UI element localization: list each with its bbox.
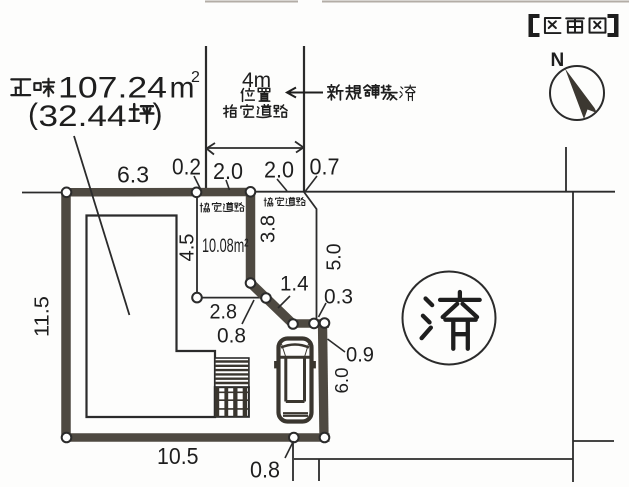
svg-text:11.5: 11.5 bbox=[31, 296, 54, 337]
svg-text:2.8: 2.8 bbox=[210, 300, 238, 324]
svg-text:N: N bbox=[551, 50, 565, 71]
svg-text:0.7: 0.7 bbox=[310, 154, 340, 180]
svg-text:6.0: 6.0 bbox=[332, 368, 352, 394]
svg-text:5.0: 5.0 bbox=[323, 244, 346, 271]
svg-text:10.08m²: 10.08m² bbox=[202, 236, 249, 257]
svg-text:10.5: 10.5 bbox=[157, 443, 199, 469]
svg-text:0.8: 0.8 bbox=[217, 324, 246, 348]
svg-text:): ) bbox=[153, 98, 163, 131]
svg-text:0.2: 0.2 bbox=[172, 154, 201, 180]
svg-text:(: ( bbox=[28, 98, 38, 131]
svg-text:0.9: 0.9 bbox=[346, 343, 374, 367]
svg-text:0.3: 0.3 bbox=[324, 285, 353, 309]
svg-text:1.4: 1.4 bbox=[280, 272, 309, 296]
svg-text:6.3: 6.3 bbox=[117, 162, 149, 188]
svg-text:0.8: 0.8 bbox=[250, 457, 280, 483]
svg-text:3.8: 3.8 bbox=[257, 215, 280, 243]
svg-text:32.44: 32.44 bbox=[39, 100, 127, 133]
svg-text:2.0: 2.0 bbox=[213, 158, 243, 184]
svg-text:2: 2 bbox=[191, 69, 200, 86]
svg-text:4.5: 4.5 bbox=[176, 234, 199, 262]
svg-text:2.0: 2.0 bbox=[264, 157, 294, 183]
